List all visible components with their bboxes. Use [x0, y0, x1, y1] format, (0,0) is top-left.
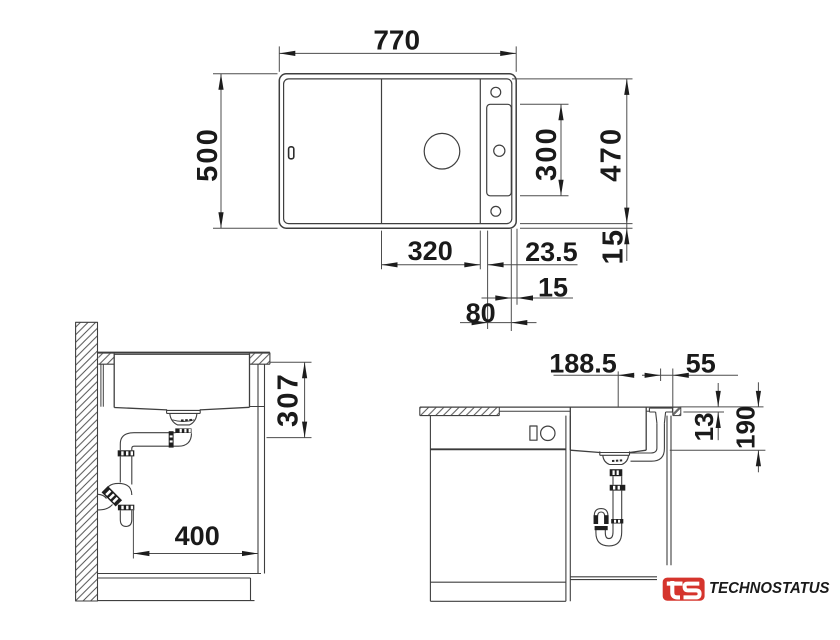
svg-text:188.5: 188.5: [549, 348, 617, 378]
svg-text:190: 190: [731, 406, 761, 449]
svg-text:80: 80: [466, 298, 496, 328]
svg-text:TECHNOSTATUS: TECHNOSTATUS: [709, 580, 830, 597]
svg-text:15: 15: [598, 228, 630, 265]
svg-text:55: 55: [686, 348, 716, 378]
svg-text:307: 307: [272, 372, 304, 427]
svg-text:15: 15: [538, 272, 568, 302]
svg-text:770: 770: [373, 25, 420, 56]
svg-text:470: 470: [595, 127, 627, 182]
svg-text:23.5: 23.5: [525, 237, 578, 267]
svg-text:13: 13: [689, 412, 719, 441]
svg-text:300: 300: [531, 126, 563, 181]
svg-text:320: 320: [408, 236, 453, 266]
svg-text:400: 400: [175, 521, 220, 551]
svg-text:500: 500: [192, 127, 224, 182]
